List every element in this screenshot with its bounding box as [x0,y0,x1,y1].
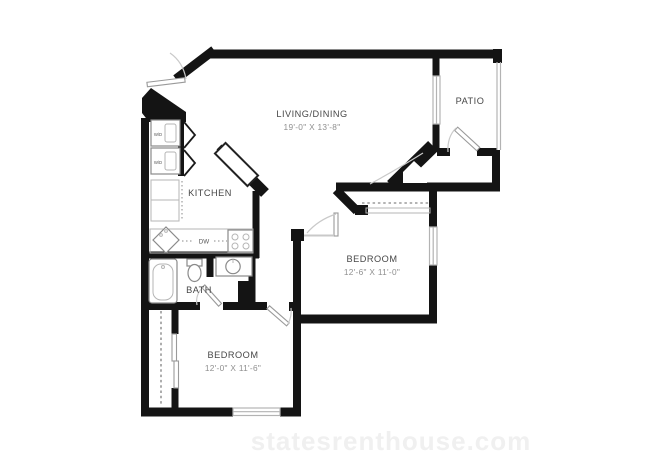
bedroom-right-label: BEDROOM [347,254,398,264]
living-dining-dims: 19'-0" X 13'-8" [284,122,341,132]
patio-door-leaf [455,127,480,151]
wall-top-end-post [493,49,502,63]
bedroom-bottom-door-leaf [267,306,289,326]
entry-door-leaf [147,78,185,87]
kitchen-fixtures [150,120,258,253]
toilet-bowl [188,265,201,282]
wall-entry-diagonal [176,50,214,79]
bedroom-bottom-label: BEDROOM [208,350,259,360]
bedroom-right-door-leaf [334,213,338,236]
kitchen-label: KITCHEN [188,188,232,198]
washer-label: W/D [154,132,162,137]
floor-plan-drawing: LIVING/DINING 19'-0" X 13'-8" PATIO KITC… [0,0,650,466]
wall-entry-corner [142,88,186,122]
pantry-cabinet [151,200,179,221]
walls [141,49,502,415]
bedroom-bottom-dims: 12'-0" X 11'-6" [205,363,261,373]
closet-right-shelf [366,208,430,213]
bath-fixtures [149,257,252,303]
stove [228,230,253,252]
bedroom-right-door-swing [307,214,336,233]
floor-plan-page: LIVING/DINING 19'-0" X 13'-8" PATIO KITC… [0,0,650,466]
bedroom-right-dims: 12'-6" X 11'-0" [344,267,400,277]
kitchen-peninsula-bar [215,143,258,186]
bath-label: BATH [186,285,212,295]
refrigerator [151,180,179,200]
watermark: statesrenthouse.com [251,426,532,456]
wd-bifold-door-lower [184,150,195,176]
wall-closet-diagonal [336,190,357,211]
windows [233,62,501,416]
closet-slider-panel-2 [174,361,179,388]
patio-label: PATIO [456,96,485,106]
dishwasher-label: DW [199,239,210,246]
wall-bedroom-door-post [291,229,304,241]
wd-bifold-door-upper [184,122,195,148]
closet-slider-panel-1 [172,334,177,361]
living-dining-label: LIVING/DINING [276,109,347,119]
dryer-label: W/D [154,160,162,165]
corner-sink [153,227,179,253]
